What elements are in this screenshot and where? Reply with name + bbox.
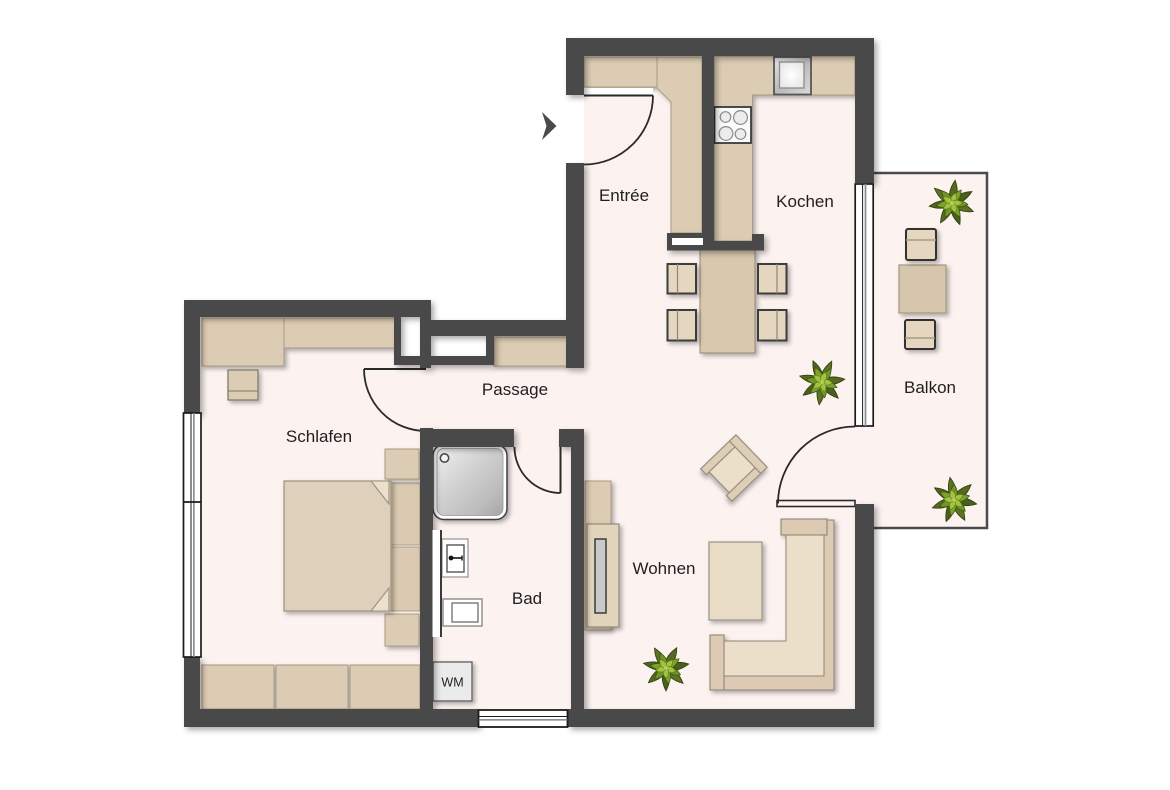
svg-text:Bad: Bad [512,589,542,608]
svg-text:WM: WM [441,676,463,690]
svg-text:Kochen: Kochen [776,192,834,211]
svg-text:Wohnen: Wohnen [632,559,695,578]
svg-text:Entrée: Entrée [599,186,649,205]
svg-text:Passage: Passage [482,380,548,399]
svg-text:Balkon: Balkon [904,378,956,397]
svg-text:Schlafen: Schlafen [286,427,352,446]
